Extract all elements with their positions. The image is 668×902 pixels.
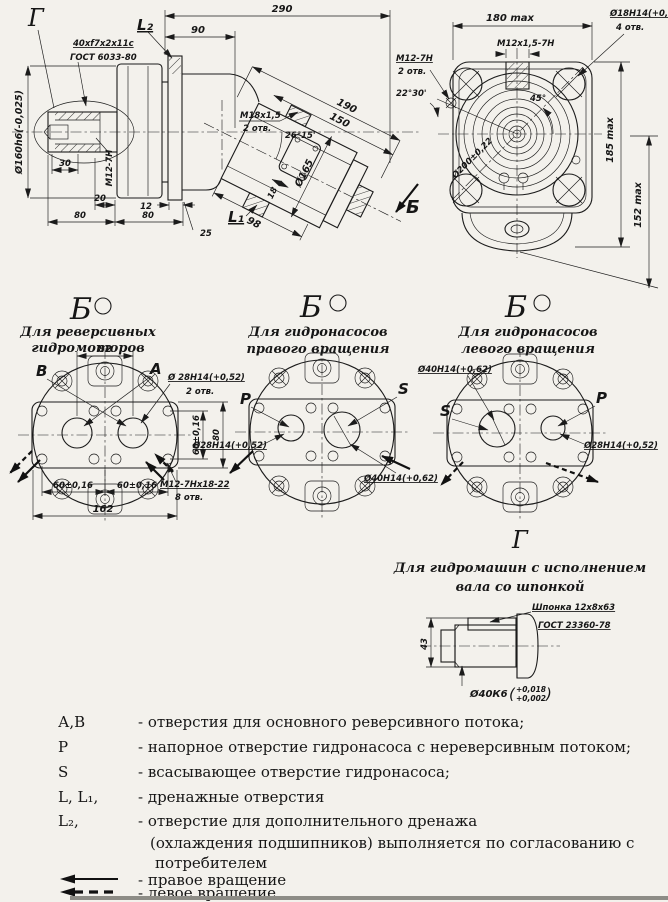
- view-g-keyed-shaft: Г Для гидромашин с исполнением вала со ш…: [393, 526, 646, 703]
- pump-left-subtitle2: левого вращения: [461, 342, 595, 357]
- pump-housing: [117, 56, 259, 200]
- dim-162: 162: [93, 504, 114, 515]
- legend: А,В- отверстия для основного реверсивног…: [58, 710, 662, 900]
- angle-22-30: 22°30': [396, 89, 427, 99]
- dim-block-diameter: Ø165: [292, 157, 316, 190]
- dim-90: 90: [191, 25, 205, 36]
- dim-25: 25: [200, 229, 212, 239]
- motor-bolt-callout: M12-7Hх18-22: [160, 480, 230, 490]
- legend-text-s: - всасывающее отверстие гидронасоса;: [138, 765, 662, 781]
- view-designation-circle: [330, 295, 346, 311]
- legend-sym-ab: А,В: [58, 715, 138, 731]
- port-p-hole: [541, 416, 565, 440]
- spline-gost-callout: ГОСТ 6033-80: [70, 53, 137, 63]
- front-flange-view: 180 max M12x1,5-7H Ø18H14(+0,43) 4 отв. …: [396, 8, 668, 288]
- side-thread-qty: 2 отв.: [398, 67, 426, 77]
- pump-left-subtitle1: Для гидронасосов: [457, 325, 597, 340]
- dim-80-vertical: 80: [212, 429, 222, 441]
- drawing-sheet: Г 40xf7x2x11c ГОСТ 6033-80 Ø160h6(-0,025…: [0, 0, 668, 900]
- port-a-label: A: [149, 360, 162, 378]
- tol-lower: +0,002: [516, 694, 546, 703]
- side-thread-callout: M12-7H: [396, 54, 433, 64]
- key-callout: Шпонка 12x8x63: [532, 603, 615, 613]
- top-port-thread-label: M12x1,5-7H: [497, 39, 554, 49]
- tol-paren-close: ): [545, 685, 552, 703]
- view-b-motor-subtitle2: гидромоторов: [31, 341, 144, 356]
- legend-row-ab: А,В- отверстия для основного реверсивног…: [58, 710, 662, 735]
- dim-60-b: 60±0,16: [117, 481, 157, 491]
- legend-row-p: Р- напорное отверстие гидронасоса с нере…: [58, 735, 662, 760]
- view-b-motor: Б Для реверсивных гидромоторов: [10, 292, 245, 522]
- view-b-arrow-label: Б: [406, 197, 420, 218]
- dim-43: 43: [420, 638, 430, 651]
- legend-sym-l2: L₂,: [58, 814, 138, 830]
- dim-82: 82: [98, 344, 112, 355]
- legend-text-ab: - отверстия для основного реверсивного п…: [138, 715, 662, 731]
- view-g-ref: Г: [511, 526, 529, 554]
- pump-right-s-label: S: [398, 380, 409, 398]
- dim-98: 98: [245, 215, 262, 231]
- motor-port-qty: 2 отв.: [186, 387, 214, 397]
- view-g-subtitle1: Для гидромашин с исполнением: [393, 561, 646, 576]
- dim-180-max: 180 max: [486, 13, 535, 24]
- scan-edge-artifact: [70, 896, 668, 900]
- legend-row-l2: L₂,- отверстие для дополнительного дрена…: [58, 810, 662, 834]
- angle-45: 45°: [529, 94, 546, 104]
- dim-290: 290: [272, 4, 293, 15]
- view-designation-circle: [95, 298, 111, 314]
- dim-20: 20: [94, 194, 106, 204]
- dim-shaft-diameter: Ø160h6(-0,025): [14, 90, 25, 175]
- key-gost-callout: ГОСТ 23360-78: [538, 621, 611, 631]
- pump-left-s-label: S: [440, 402, 451, 420]
- view-b-pump-left: Б Для гидронасосов левого вращения Ø40H1…: [417, 290, 658, 520]
- port-a-hole: [118, 418, 148, 448]
- view-g-subtitle2: вала со шпонкой: [456, 580, 585, 595]
- port-thread-callout: M18x1,5: [240, 111, 281, 121]
- side-section-view: Г 40xf7x2x11c ГОСТ 6033-80 Ø160h6(-0,025…: [12, 4, 438, 287]
- corner-holes-callout: Ø18H14(+0,43): [609, 8, 668, 19]
- legend-text-l-l1: - дренажные отверстия: [138, 790, 662, 806]
- dim-18: 18: [266, 186, 280, 201]
- view-b-motor-ref: Б: [69, 292, 92, 327]
- pump-right-subtitle1: Для гидронасосов: [247, 325, 387, 340]
- view-b-motor-subtitle1: Для реверсивных: [19, 325, 156, 340]
- legend-row-l2-cont1: (охлаждения подшипников) выполняется по …: [58, 834, 662, 854]
- legend-text-l2-cont2: потребителем: [138, 856, 662, 872]
- pump-right-p-label: P: [240, 390, 251, 408]
- dim-30: 30: [59, 159, 71, 169]
- dim-60-a: 60±0,16: [53, 481, 93, 491]
- spline-callout: 40xf7x2x11c: [72, 39, 134, 49]
- legend-row-l-l1: L, L₁,- дренажные отверстия: [58, 785, 662, 810]
- port-b-hole: [62, 418, 92, 448]
- view-b-pump-left-ref: Б: [504, 290, 527, 325]
- tol-upper: +0,018: [516, 685, 546, 694]
- pump-left-s-callout: Ø40H14(+0,62): [417, 364, 492, 375]
- legend-text-p: - напорное отверстие гидронасоса с нерев…: [138, 740, 662, 756]
- pump-left-p-callout: Ø28H14(+0,52): [583, 440, 658, 451]
- port-l1-label: L₁: [228, 208, 244, 226]
- view-designation-circle: [534, 295, 550, 311]
- pump-right-port-face: [235, 345, 409, 519]
- legend-sym-s: S: [58, 765, 138, 781]
- motor-port-callout: Ø 28H14(+0,52): [167, 372, 245, 383]
- legend-sym-l-l1: L, L₁,: [58, 790, 138, 806]
- legend-text-l2-cont1: (охлаждения подшипников) выполняется по …: [138, 836, 662, 852]
- view-b-pump-right-ref: Б: [299, 290, 322, 325]
- port-thread-qty: 2 отв.: [243, 124, 271, 134]
- dim-152-max: 152 max: [633, 181, 644, 227]
- dim-80-left: 80: [74, 211, 86, 221]
- center-thread-label: M12-7H: [105, 150, 115, 187]
- tol-paren-open: (: [509, 685, 516, 703]
- pump-right-s-callout: Ø40H14(+0,62): [363, 473, 438, 484]
- detail-g-ref-label: Г: [27, 4, 45, 32]
- port-p-hole: [278, 415, 304, 441]
- corner-holes-qty: 4 отв.: [615, 23, 644, 33]
- pump-right-subtitle2: правого вращения: [246, 342, 389, 357]
- dim-80-right: 80: [142, 211, 154, 221]
- angle-26-15: 26°15': [285, 131, 316, 141]
- pump-right-p-callout: Ø28H14(+0,52): [192, 440, 267, 451]
- port-b-label: B: [36, 362, 47, 380]
- dim-185-max: 185 max: [605, 116, 616, 162]
- port-l2-label: L₂: [137, 16, 154, 34]
- legend-row-s: S- всасывающее отверстие гидронасоса;: [58, 760, 662, 785]
- tilted-cylinder-block: Ø165 190 150 98 18: [171, 48, 438, 287]
- motor-bolt-qty: 8 отв.: [175, 493, 203, 503]
- shaft-key: [468, 618, 516, 630]
- pump-left-p-label: P: [596, 389, 607, 407]
- motor-rotation-arrows: [10, 451, 173, 482]
- legend-text-l2: - отверстие для дополнительного дренажа: [138, 814, 662, 830]
- technical-drawing-canvas: Г 40xf7x2x11c ГОСТ 6033-80 Ø160h6(-0,025…: [0, 0, 668, 712]
- shaft-dia-callout: Ø40К6: [469, 688, 508, 700]
- legend-sym-p: Р: [58, 740, 138, 756]
